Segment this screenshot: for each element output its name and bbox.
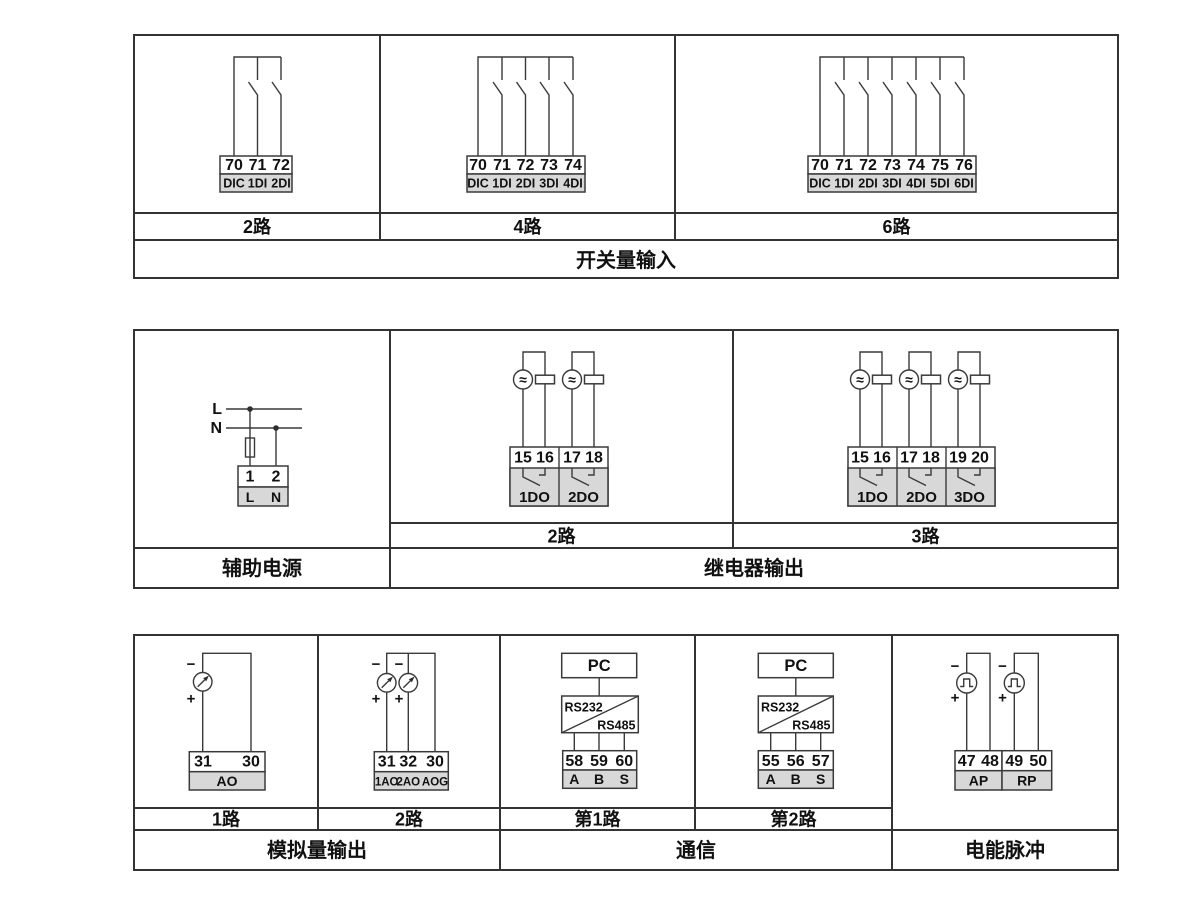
pc-label: PC [784, 657, 807, 675]
terminal-number: 73 [540, 157, 558, 174]
minus-sign: − [951, 658, 960, 675]
comm-2-label: 第2路 [770, 809, 817, 830]
terminal-number: 19 [949, 450, 967, 467]
plus-sign: + [372, 691, 381, 708]
terminal-number: 70 [469, 157, 487, 174]
aux-power-relay-table: L N 1 2 L N ≈ ≈ 15 [134, 330, 1118, 588]
terminal-number: 71 [493, 157, 511, 174]
terminal-number: 74 [564, 157, 582, 174]
ao-2way-label: 2路 [395, 809, 424, 830]
terminal-name: 4DI [563, 177, 582, 191]
terminal-name: A [766, 771, 776, 787]
terminal-number: 58 [565, 753, 583, 770]
terminal-name: AO [217, 773, 238, 789]
relay-2way-diagram: ≈ ≈ 15 16 17 18 1DO 2DO [510, 352, 608, 506]
terminal-number: 56 [787, 753, 805, 770]
terminal-number: 72 [517, 157, 535, 174]
terminal-name: AOG [422, 777, 448, 789]
comm-2-diagram: PC RS232 RS485 55 56 57 A B S [758, 653, 833, 788]
terminal-number: 30 [242, 754, 260, 771]
di-6way-diagram: 70 71 72 73 74 75 76 DIC 1DI 2DI 3DI 4DI… [808, 57, 976, 192]
rs232-label: RS232 [761, 701, 799, 715]
terminal-number: 70 [811, 157, 829, 174]
terminal-number: 1 [246, 469, 255, 486]
comm-1-diagram: PC RS232 RS485 58 59 60 A B S [562, 653, 639, 788]
terminal-name: 3DI [882, 177, 901, 191]
plus-sign: + [951, 690, 960, 707]
pc-label: PC [588, 657, 611, 675]
rs485-label: RS485 [597, 719, 635, 733]
neutral-line-label: N [210, 420, 222, 437]
ac-symbol: ≈ [856, 372, 864, 388]
relay-unit-wires [860, 352, 882, 447]
ac-symbol: ≈ [905, 372, 913, 388]
load-icon [922, 375, 941, 384]
terminal-name: DIC [223, 177, 245, 191]
terminal-number: 76 [955, 157, 973, 174]
terminal-number: 47 [958, 753, 976, 770]
load-icon [585, 375, 604, 384]
comm-wires [574, 733, 624, 751]
relay-name: 2DO [568, 489, 599, 506]
rs485-label: RS485 [792, 719, 830, 733]
terminal-number: 60 [615, 753, 633, 770]
terminal-number: 48 [981, 753, 999, 770]
terminal-name: AP [969, 773, 988, 789]
load-icon [971, 375, 990, 384]
terminal-number: 18 [922, 450, 940, 467]
junction-dot [273, 425, 279, 431]
communication-title: 通信 [676, 838, 716, 862]
pulse-unit-wires [1014, 653, 1038, 750]
pulse-unit-wires [967, 653, 990, 750]
comm-wires [771, 733, 821, 751]
terminal-number: 20 [971, 450, 989, 467]
terminal-number: 17 [563, 450, 581, 467]
terminal-name: L [246, 489, 255, 505]
terminal-number: 16 [536, 450, 554, 467]
relay-2way-label: 2路 [547, 526, 576, 547]
live-line-label: L [212, 401, 222, 418]
di-4way-label: 4路 [513, 216, 542, 237]
terminal-number: 30 [426, 754, 444, 771]
relay-name: 3DO [954, 489, 985, 506]
load-icon [536, 375, 555, 384]
aux-power-title: 辅助电源 [222, 556, 302, 580]
terminal-number: 2 [272, 469, 281, 486]
terminal-number: 31 [378, 754, 396, 771]
terminal-name: N [271, 489, 281, 505]
comm-1-label: 第1路 [574, 809, 621, 830]
relay-3way-diagram: ≈ ≈ ≈ 15 16 17 18 19 20 1DO 2DO 3DO [848, 352, 995, 506]
digital-input-table: 70 71 72 DIC 1DI 2DI 70 71 72 73 74 DIC … [134, 35, 1118, 278]
minus-sign: − [998, 658, 1007, 675]
terminal-name: 1DI [834, 177, 853, 191]
plus-sign: + [395, 691, 404, 708]
ac-symbol: ≈ [568, 372, 576, 388]
ao-1way-label: 1路 [212, 809, 241, 830]
terminal-number: 31 [194, 754, 212, 771]
ac-symbol: ≈ [954, 372, 962, 388]
relay-unit-wires [523, 352, 545, 447]
terminal-number: 32 [399, 754, 417, 771]
terminal-number: 72 [859, 157, 877, 174]
relay-name: 1DO [857, 489, 888, 506]
terminal-number: 59 [590, 753, 608, 770]
analog-output-title: 模拟量输出 [267, 838, 367, 862]
terminal-number: 57 [812, 753, 830, 770]
pulse-source-icon [1004, 673, 1024, 693]
terminal-number: 15 [851, 450, 869, 467]
ac-symbol: ≈ [519, 372, 527, 388]
terminal-name: 5DI [930, 177, 949, 191]
terminal-name: 1DI [492, 177, 511, 191]
terminal-name: 1DI [248, 177, 267, 191]
terminal-name: 2DI [858, 177, 877, 191]
di-4way-wires-and-switch-icons [478, 57, 573, 156]
di-2way-diagram: 70 71 72 DIC 1DI 2DI [220, 57, 292, 192]
aux-power-wires [226, 409, 302, 466]
terminal-number: 73 [883, 157, 901, 174]
terminal-number: 18 [585, 450, 603, 467]
terminal-name: 4DI [906, 177, 925, 191]
terminal-number: 16 [873, 450, 891, 467]
terminal-number: 70 [225, 157, 243, 174]
relay-3way-label: 3路 [911, 526, 940, 547]
relay-unit-wires [958, 352, 980, 447]
di-6way-label: 6路 [882, 216, 911, 237]
di-4way-diagram: 70 71 72 73 74 DIC 1DI 2DI 3DI 4DI [467, 57, 585, 192]
minus-sign: − [187, 656, 196, 673]
terminal-number: 71 [835, 157, 853, 174]
relay-name: 2DO [906, 489, 937, 506]
terminal-number: 49 [1005, 753, 1023, 770]
minus-sign: − [372, 656, 381, 673]
minus-sign: − [395, 656, 404, 673]
terminal-number: 15 [514, 450, 532, 467]
terminal-name: 2AO [396, 777, 420, 789]
di-6way-wires-and-switch-icons [820, 57, 964, 156]
digital-input-title: 开关量输入 [576, 248, 676, 272]
terminal-name: 6DI [954, 177, 973, 191]
rs232-label: RS232 [565, 701, 603, 715]
terminal-number: 50 [1029, 753, 1047, 770]
relay-unit-wires [909, 352, 931, 447]
terminal-number: 75 [931, 157, 949, 174]
ao-2way-diagram: − − + + 31 32 30 1AO 2AO AOG [372, 653, 449, 790]
terminal-number: 71 [249, 157, 267, 174]
terminal-name: B [594, 771, 604, 787]
terminal-name: 2DI [516, 177, 535, 191]
ao-1way-diagram: − + 31 30 AO [187, 653, 265, 790]
analog-comm-pulse-table: − + 31 30 AO − − + + 31 32 30 1AO [134, 635, 1118, 870]
terminal-name: RP [1017, 773, 1036, 789]
terminal-name: S [620, 771, 629, 787]
terminal-number: 17 [900, 450, 918, 467]
plus-sign: + [998, 690, 1007, 707]
terminal-name: DIC [809, 177, 831, 191]
terminal-name: 1AO [375, 777, 399, 789]
terminal-name: 2DI [271, 177, 290, 191]
load-icon [873, 375, 892, 384]
terminal-name: B [791, 771, 801, 787]
terminal-name: A [569, 771, 579, 787]
terminal-name: 3DI [539, 177, 558, 191]
ao-wires [203, 653, 251, 751]
terminal-number: 55 [762, 753, 780, 770]
wiring-diagram-page: 70 71 72 DIC 1DI 2DI 70 71 72 73 74 DIC … [0, 0, 1200, 912]
terminal-name: DIC [467, 177, 489, 191]
wiring-diagram-canvas: 70 71 72 DIC 1DI 2DI 70 71 72 73 74 DIC … [0, 0, 1200, 912]
terminal-name: S [816, 771, 825, 787]
terminal-number: 72 [272, 157, 290, 174]
relay-output-title: 继电器输出 [704, 556, 804, 580]
pulse-source-icon [957, 673, 977, 693]
di-2way-label: 2路 [243, 216, 272, 237]
relay-unit-wires [572, 352, 594, 447]
relay-name: 1DO [519, 489, 550, 506]
junction-dot [247, 406, 253, 412]
energy-pulse-title: 电能脉冲 [965, 838, 1045, 862]
aux-power-diagram: L N 1 2 L N [210, 401, 302, 506]
energy-pulse-diagram: − + − + 47 48 49 50 AP RP [951, 653, 1052, 790]
plus-sign: + [187, 691, 196, 708]
terminal-number: 74 [907, 157, 925, 174]
di-2way-wires-and-switch-icons [234, 57, 281, 156]
